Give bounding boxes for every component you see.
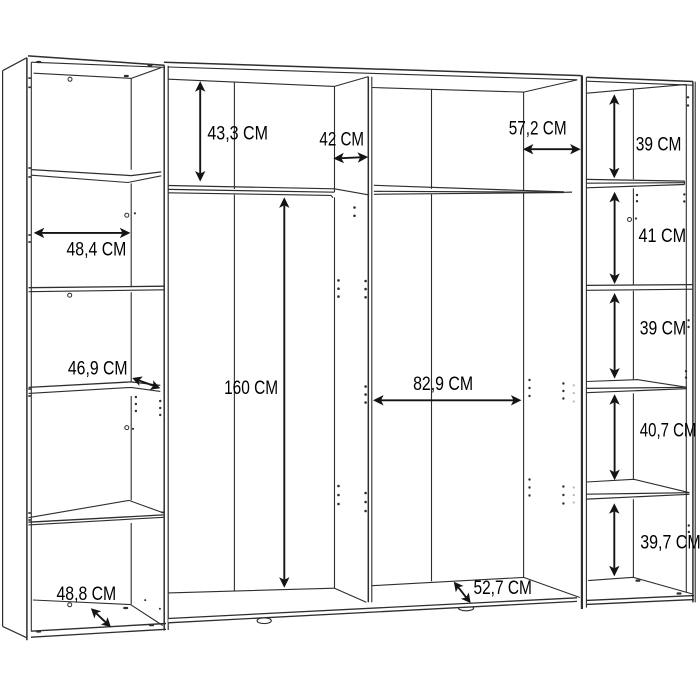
- svg-text:46,9 CM: 46,9 CM: [68, 358, 128, 380]
- svg-text:160 CM: 160 CM: [224, 377, 278, 399]
- svg-text:48,4 CM: 48,4 CM: [67, 238, 127, 260]
- svg-text:48,8 CM: 48,8 CM: [57, 583, 117, 605]
- svg-text:39 CM: 39 CM: [640, 317, 686, 339]
- svg-text:52,7 CM: 52,7 CM: [474, 577, 532, 599]
- svg-text:39 CM: 39 CM: [636, 134, 682, 156]
- svg-text:39,7 CM: 39,7 CM: [640, 531, 700, 553]
- svg-text:42 CM: 42 CM: [319, 129, 364, 151]
- svg-text:40,7 CM: 40,7 CM: [640, 420, 697, 442]
- svg-text:41 CM: 41 CM: [639, 225, 687, 247]
- svg-text:82,9 CM: 82,9 CM: [413, 373, 473, 395]
- svg-text:57,2 CM: 57,2 CM: [509, 118, 567, 140]
- svg-text:43,3 CM: 43,3 CM: [207, 123, 268, 145]
